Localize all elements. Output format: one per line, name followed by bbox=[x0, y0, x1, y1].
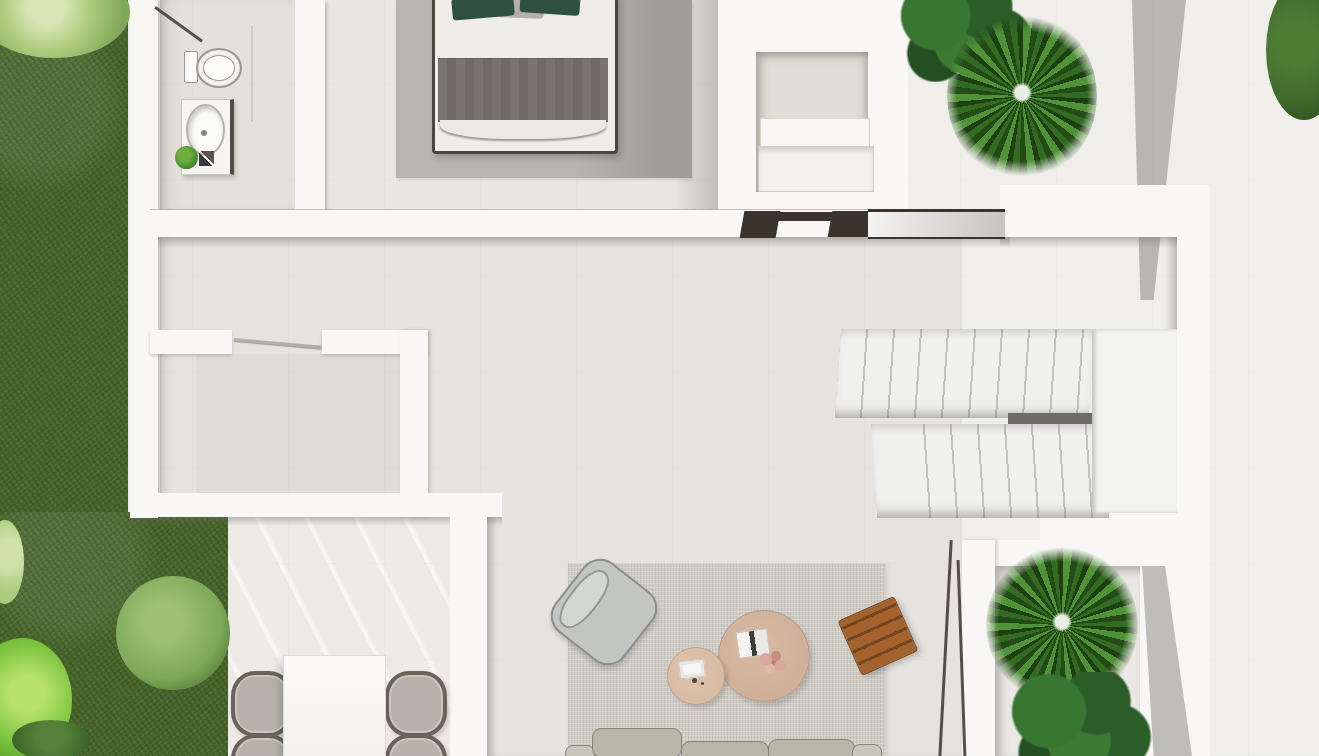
stairs-landing bbox=[1092, 329, 1177, 513]
broadleaf-plant-courtyard bbox=[1004, 672, 1154, 756]
recessed-window bbox=[868, 209, 1005, 239]
toiletries bbox=[199, 151, 214, 166]
door-jamb-right bbox=[828, 211, 873, 237]
sofa-arm-left bbox=[565, 745, 595, 756]
wall-bathroom-bedroom bbox=[295, 0, 325, 213]
sofa-back-cushion-middle bbox=[681, 741, 769, 756]
wall-terrace-divider bbox=[450, 497, 487, 756]
wall-right-outer bbox=[1177, 237, 1210, 540]
stairs-upper-flight bbox=[835, 329, 1095, 418]
floor-plan-scene bbox=[0, 0, 1319, 756]
lawn-left bbox=[0, 0, 128, 520]
sofa-back-cushion-right bbox=[768, 739, 855, 756]
toilet-bowl bbox=[196, 48, 242, 88]
shower-enclosure-edge bbox=[251, 26, 253, 122]
sofa-back-cushion-left bbox=[592, 728, 682, 756]
wall-left-exterior bbox=[130, 0, 158, 518]
faucet bbox=[201, 130, 207, 136]
bush-by-dining bbox=[116, 576, 230, 690]
fan-palm-top bbox=[947, 12, 1097, 180]
sofa-arm-right bbox=[852, 744, 882, 756]
wall-room-bottom bbox=[130, 493, 502, 517]
wall-horizontal-right bbox=[1000, 185, 1210, 237]
dining-table bbox=[283, 655, 386, 756]
shadow-right-wall-segment bbox=[1000, 237, 1177, 248]
flower-sprigs bbox=[755, 648, 791, 680]
dining-chair-right-upper bbox=[385, 671, 447, 737]
bathroom-potted-plant bbox=[175, 146, 198, 169]
dresser-lower-drawer bbox=[758, 146, 874, 192]
stairs-lower-flight bbox=[871, 424, 1110, 518]
sliding-door-track bbox=[774, 212, 834, 221]
right-terrace-floor bbox=[1210, 212, 1319, 756]
tray-with-cup bbox=[678, 659, 706, 680]
bed-blanket bbox=[438, 58, 608, 122]
empty-room-floor bbox=[196, 354, 400, 493]
wall-room-right bbox=[400, 330, 428, 517]
wall-room-top-left bbox=[150, 330, 232, 354]
small-cups bbox=[692, 678, 697, 683]
stairs-mid-gap bbox=[1008, 413, 1092, 424]
bush-dark-bottom bbox=[12, 720, 90, 756]
